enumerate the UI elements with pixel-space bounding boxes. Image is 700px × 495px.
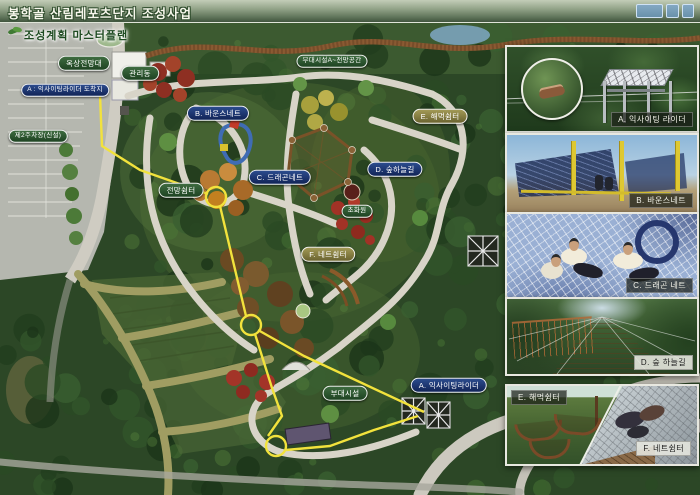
photo-card-forest-sky-road: D. 숲 하늘길 — [505, 297, 699, 376]
person-silhouette — [569, 238, 579, 251]
water-feature — [430, 25, 490, 45]
page-title: 봉학골 산림레포츠단지 조성사업 — [8, 3, 192, 22]
map-label-viewpoint-shelter: 전망쉼터 — [159, 183, 204, 198]
map-label-exciting-rider-arrival: A : 익사이팅라이더 도착지 — [21, 84, 109, 97]
zipline-platform-roof — [600, 69, 673, 86]
map-label-exciting-rider: A. 익사이팅라이더 — [411, 378, 487, 393]
map-label-bounce-net: B. 바운스네트 — [187, 106, 249, 121]
map-label-hammock-shelter: E. 해먹쉼터 — [413, 109, 468, 124]
zipline-rider — [538, 85, 565, 99]
photo-label-d: D. 숲 하늘길 — [634, 355, 693, 370]
photo-card-bounce-net: B. 바운스네트 — [505, 133, 699, 214]
map-label-management-building: 관리동 — [121, 66, 159, 81]
photo-label-e: E. 해먹쉼터 — [511, 390, 567, 405]
person-silhouette — [551, 254, 561, 267]
photo-card-dragon-net: C. 드래곤 네트 — [505, 212, 699, 299]
person-silhouette — [595, 175, 603, 190]
photo-label-f: F. 네트쉼터 — [636, 441, 691, 456]
photo-card-exciting-rider: A. 익사이팅 라이더 — [505, 45, 699, 133]
map-label-net-shelter: F. 네트쉼터 — [301, 247, 355, 262]
map-label-aux-facility-a-viewpoint: 부대시설A~전망공간 — [297, 55, 368, 68]
county-logo-icon — [636, 3, 694, 18]
map-label-dragon-net: C. 드래곤네트 — [249, 170, 311, 185]
photo-card-hammock-and-net: E. 해먹쉼터 F. 네트쉼터 — [505, 384, 699, 466]
photo-inset-circle — [521, 58, 583, 120]
person-silhouette — [623, 242, 633, 255]
header-bar: 봉학골 산림레포츠단지 조성사업 — [0, 0, 700, 23]
masterplan-subtitle: 조성계획 마스터플랜 — [24, 27, 128, 43]
photo-label-a: A. 익사이팅 라이더 — [611, 112, 693, 127]
map-label-parking-lot-2: 제2주차장(신설) — [9, 130, 68, 143]
photo-label-c: C. 드래곤 네트 — [626, 278, 693, 293]
map-label-rooftop-observatory: 옥상전망대 — [58, 56, 110, 71]
map-label-aux-facility: 부대시설 — [323, 386, 368, 401]
map-label-forest-sky-road: D. 숲하늘길 — [367, 162, 422, 177]
map-label-flower-garden: 초화원 — [342, 205, 373, 218]
photo-label-b: B. 바운스네트 — [629, 193, 693, 208]
masterplan-page: 봉학골 산림레포츠단지 조성사업 조성계획 마스터플랜 — [0, 0, 700, 495]
person-silhouette — [605, 177, 613, 190]
leaf-sprout-icon — [8, 26, 22, 38]
